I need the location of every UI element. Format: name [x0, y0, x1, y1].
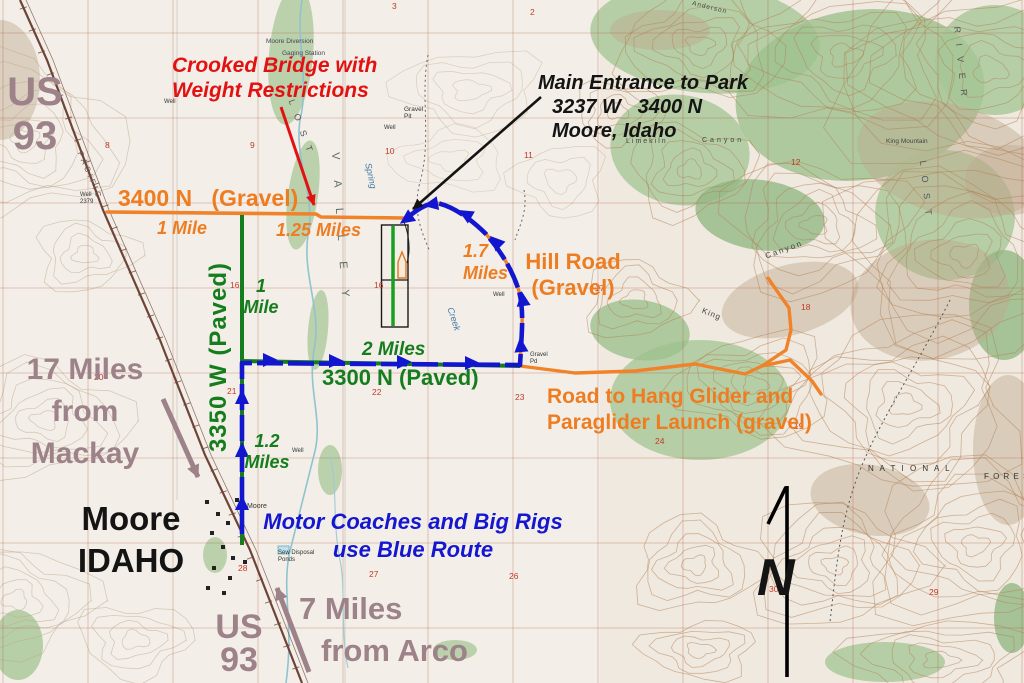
building [206, 586, 210, 590]
building [210, 531, 214, 535]
map-landmark: Well [384, 125, 396, 132]
map-landmark: Gravel Pd [530, 352, 548, 366]
arco-distance-label-line1: 7 Miles [299, 592, 402, 626]
building [221, 545, 225, 549]
map-landmark: 24 [655, 437, 664, 447]
moore-town-label: Moore IDAHO [55, 498, 207, 582]
mile-1-green-label: 1 Mile [238, 276, 284, 318]
map-landmark: 26 [509, 572, 518, 582]
map-landmark: 10 [385, 147, 394, 157]
hill-road-label: Hill Road (Gravel) [521, 249, 625, 301]
us93-label-bottom: US93 [204, 611, 274, 677]
building [226, 521, 230, 525]
mackay-distance-label: 17 Miles from Mackay [0, 349, 170, 475]
map-landmark: 11 [524, 151, 533, 161]
map-landmark: 9 [250, 141, 255, 151]
miles-1-2-label: 1.2 Miles [242, 431, 292, 473]
motor-coaches-label: Motor Coaches and Big Rigs use Blue Rout… [258, 508, 568, 564]
building [228, 576, 232, 580]
forest-patch [825, 642, 945, 682]
compass-north-label: N [757, 550, 795, 607]
crooked-bridge-label: Crooked Bridge with Weight Restrictions [172, 53, 377, 103]
map-landmark: 8 [105, 141, 110, 151]
hang-glider-road-label: Road to Hang Glider and Paraglider Launc… [547, 384, 812, 436]
map-landmark: N A T I O N A L [868, 464, 952, 473]
miles-1-25-label: 1.25 Miles [276, 221, 361, 241]
building [235, 498, 239, 502]
map-landmark: F O R E S [984, 472, 1024, 481]
main-entrance-label: Main Entrance to Park3237 W 3400 NMoore,… [538, 71, 748, 143]
road-3400n-label: 3400 N (Gravel) [118, 186, 298, 211]
map-landmark: 29 [929, 588, 938, 598]
us93-label-top: US93 [0, 70, 70, 158]
map-landmark: Gravel Pit [404, 106, 423, 121]
miles-1-7-label: 1.7 Miles [463, 240, 508, 284]
building [216, 512, 220, 516]
forest-patch [318, 445, 342, 495]
map-landmark: 23 [515, 393, 524, 403]
arco-distance-label-line2: from Arco [321, 634, 468, 668]
topo-map: PACIFICMoore DiversionGaging StationV A … [0, 0, 1024, 683]
map-landmark: 28 [238, 564, 247, 574]
map-landmark: 12 [791, 158, 800, 168]
map-landmark: 3 [392, 2, 397, 12]
map-landmark: Moore Diversion [266, 38, 313, 45]
miles-2-label: 2 Miles [362, 340, 425, 361]
road-3300n-label: 3300 N (Paved) [322, 366, 479, 390]
map-landmark: 27 [369, 570, 378, 580]
building [212, 566, 216, 570]
map-landmark: Well [292, 448, 304, 455]
mile-1-orange-label: 1 Mile [157, 219, 207, 239]
map-landmark: 18 [801, 303, 810, 313]
map-landmark: Well 2379 [80, 192, 93, 206]
map-landmark: 16 [374, 281, 383, 291]
map-landmark: Well [493, 292, 505, 299]
map-landmark: King Mountain [886, 138, 928, 145]
building [231, 556, 235, 560]
building [222, 591, 226, 595]
map-landmark: 2 [530, 8, 535, 18]
